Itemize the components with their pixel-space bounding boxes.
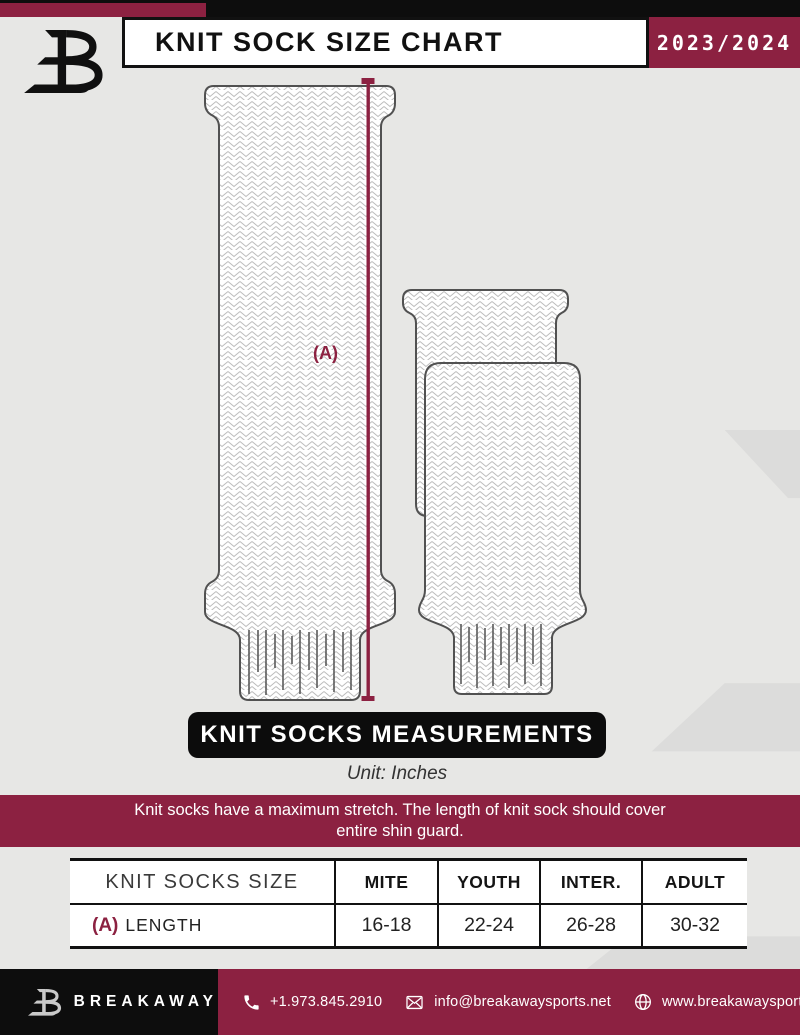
length-text: LENGTH (125, 915, 202, 936)
table-header-youth: YOUTH (437, 861, 539, 905)
length-adult: 30-32 (641, 905, 747, 946)
email-address: info@breakawaysports.net (434, 994, 611, 1010)
page-title: KNIT SOCK SIZE CHART (155, 27, 503, 58)
sock-small (419, 363, 586, 694)
phone-number: +1.973.845.2910 (270, 994, 382, 1010)
size-table: KNIT SOCKS SIZE MITE YOUTH INTER. ADULT … (70, 858, 747, 949)
length-key: (A) (92, 915, 118, 937)
phone-contact[interactable]: +1.973.845.2910 (242, 993, 382, 1012)
sock-diagram (0, 0, 800, 720)
length-youth: 22-24 (437, 905, 539, 946)
measurements-banner: KNIT SOCKS MEASUREMENTS (188, 712, 606, 758)
page: (A) KNIT SOCK SIZE CHART 2023/2024 KNIT … (0, 0, 800, 1035)
footer: BREAKAWAY +1.973.845.2910 info@breakaway… (0, 969, 800, 1035)
top-strip (0, 0, 800, 17)
footer-brand-block: BREAKAWAY (0, 969, 218, 1035)
phone-icon (242, 993, 261, 1012)
website-url: www.breakawaysports.net (662, 994, 800, 1010)
top-strip-maroon (0, 3, 206, 17)
top-strip-black (206, 3, 800, 17)
breakaway-logo-icon (24, 30, 104, 94)
brand-name: BREAKAWAY (74, 993, 218, 1011)
email-contact[interactable]: info@breakawaysports.net (404, 993, 611, 1012)
season-badge: 2023/2024 (649, 17, 800, 68)
title-box: KNIT SOCK SIZE CHART (122, 17, 649, 68)
stretch-note-line2: entire shin guard. (336, 821, 464, 842)
length-mite: 16-18 (334, 905, 437, 946)
table-header-inter: INTER. (539, 861, 641, 905)
table-header-mite: MITE (334, 861, 437, 905)
length-inter: 26-28 (539, 905, 641, 946)
table-header-size: KNIT SOCKS SIZE (70, 861, 334, 905)
table-header-adult: ADULT (641, 861, 747, 905)
envelope-icon (404, 993, 425, 1012)
globe-icon (633, 992, 653, 1012)
stretch-note: Knit socks have a maximum stretch. The l… (0, 795, 800, 847)
website-contact[interactable]: www.breakawaysports.net (633, 992, 800, 1012)
stretch-note-line1: Knit socks have a maximum stretch. The l… (134, 800, 666, 821)
unit-label: Unit: Inches (188, 763, 606, 785)
table-row-length-label: (A) LENGTH (70, 905, 334, 946)
measurement-label-a: (A) (313, 343, 338, 364)
breakaway-logo-footer-icon (28, 985, 62, 1020)
footer-contact-block: +1.973.845.2910 info@breakawaysports.net… (218, 969, 800, 1035)
